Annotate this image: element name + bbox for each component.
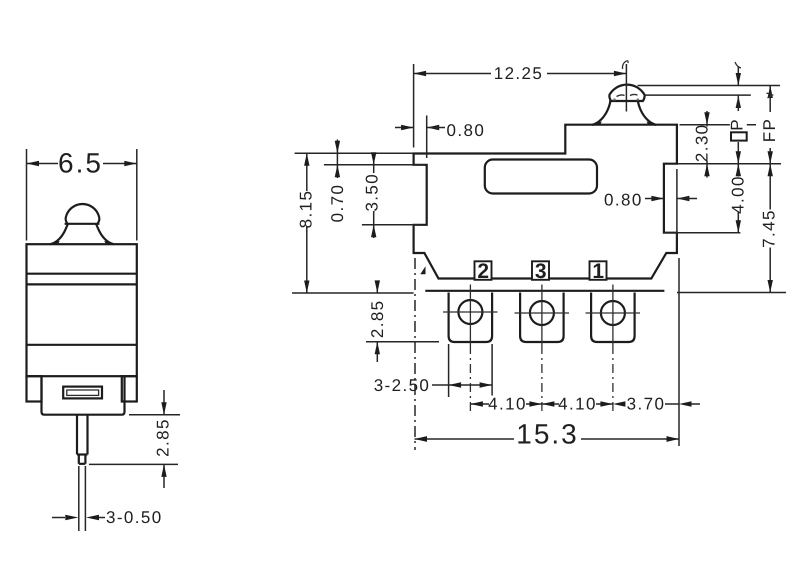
svg-text:2.85: 2.85 <box>154 418 173 457</box>
svg-text:8.15: 8.15 <box>296 190 315 229</box>
svg-text:3.50: 3.50 <box>362 173 381 212</box>
svg-text:15.3: 15.3 <box>516 419 579 450</box>
svg-text:3-2.50: 3-2.50 <box>374 376 431 395</box>
svg-text:12.25: 12.25 <box>494 64 544 83</box>
svg-text:3: 3 <box>535 260 547 283</box>
svg-text:7.45: 7.45 <box>759 209 778 248</box>
svg-text:FP: FP <box>760 118 779 143</box>
svg-text:P: P <box>728 118 747 131</box>
svg-text:0.80: 0.80 <box>604 191 643 210</box>
svg-text:4.00: 4.00 <box>728 175 747 214</box>
svg-text:0.70: 0.70 <box>328 184 347 223</box>
svg-text:6.5: 6.5 <box>58 148 103 179</box>
svg-text:2: 2 <box>477 260 489 283</box>
svg-text:3.70: 3.70 <box>627 395 666 414</box>
svg-text:3-0.50: 3-0.50 <box>106 508 163 527</box>
svg-text:4.10: 4.10 <box>558 395 597 414</box>
svg-text:0.80: 0.80 <box>447 121 486 140</box>
svg-text:1: 1 <box>592 260 604 283</box>
svg-text:2.85: 2.85 <box>368 299 387 338</box>
svg-text:4.10: 4.10 <box>488 395 527 414</box>
svg-text:2.30: 2.30 <box>693 123 712 162</box>
